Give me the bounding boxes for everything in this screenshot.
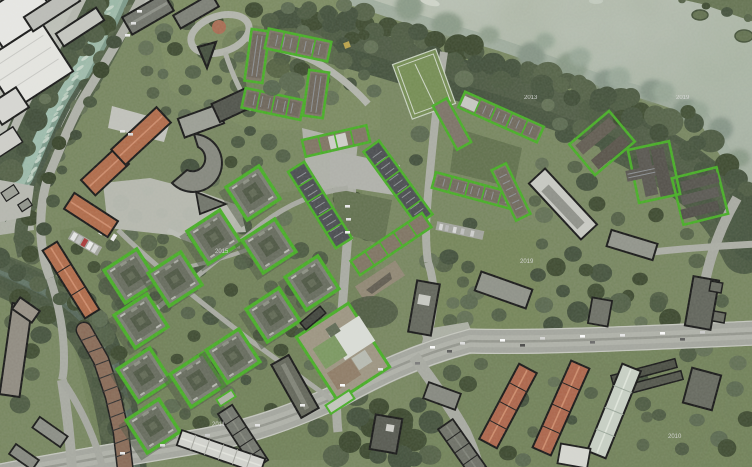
svg-text:2019: 2019 <box>520 259 534 265</box>
svg-text:2019: 2019 <box>676 95 690 101</box>
svg-text:2015: 2015 <box>215 249 229 255</box>
svg-text:2013: 2013 <box>524 95 538 101</box>
svg-text:2010: 2010 <box>668 434 682 440</box>
svg-text:2011: 2011 <box>212 422 226 428</box>
